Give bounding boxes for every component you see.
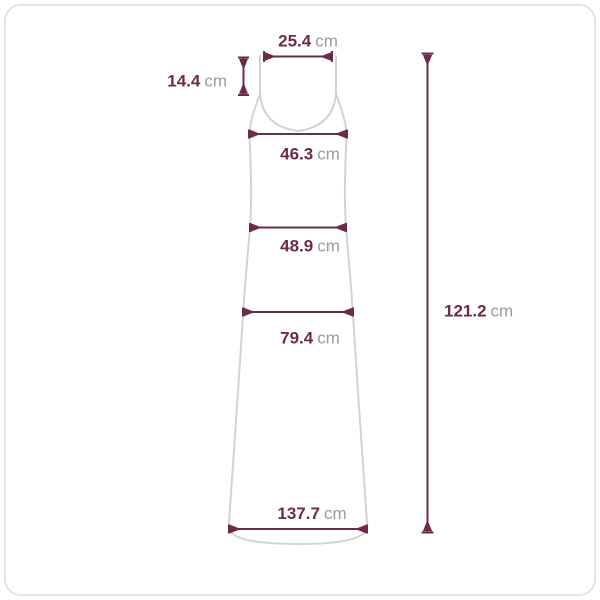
waist-width-label: 48.9cm xyxy=(280,237,340,256)
total-length-measure xyxy=(422,54,434,533)
bust-width-label: 46.3cm xyxy=(280,145,340,164)
size-diagram: 25.4cm 14.4cm 46.3cm 48.9cm 79.4cm 137.7… xyxy=(0,0,600,600)
hem-width-label: 137.7cm xyxy=(277,504,346,523)
strap-length-label: 14.4cm xyxy=(167,72,227,91)
hem-width-measure xyxy=(229,525,367,534)
hip-width-label: 79.4cm xyxy=(280,329,340,348)
garment-outline xyxy=(229,56,368,544)
hip-width-measure xyxy=(243,308,353,317)
strap-length-measure xyxy=(238,58,249,96)
shoulder-width-label: 25.4cm xyxy=(278,32,338,51)
shoulder-width-measure xyxy=(264,51,332,62)
total-length-label: 121.2cm xyxy=(444,302,513,321)
waist-width-measure xyxy=(250,223,346,232)
size-chart-panel: 25.4cm 14.4cm 46.3cm 48.9cm 79.4cm 137.7… xyxy=(0,0,600,600)
neckline xyxy=(260,94,336,132)
